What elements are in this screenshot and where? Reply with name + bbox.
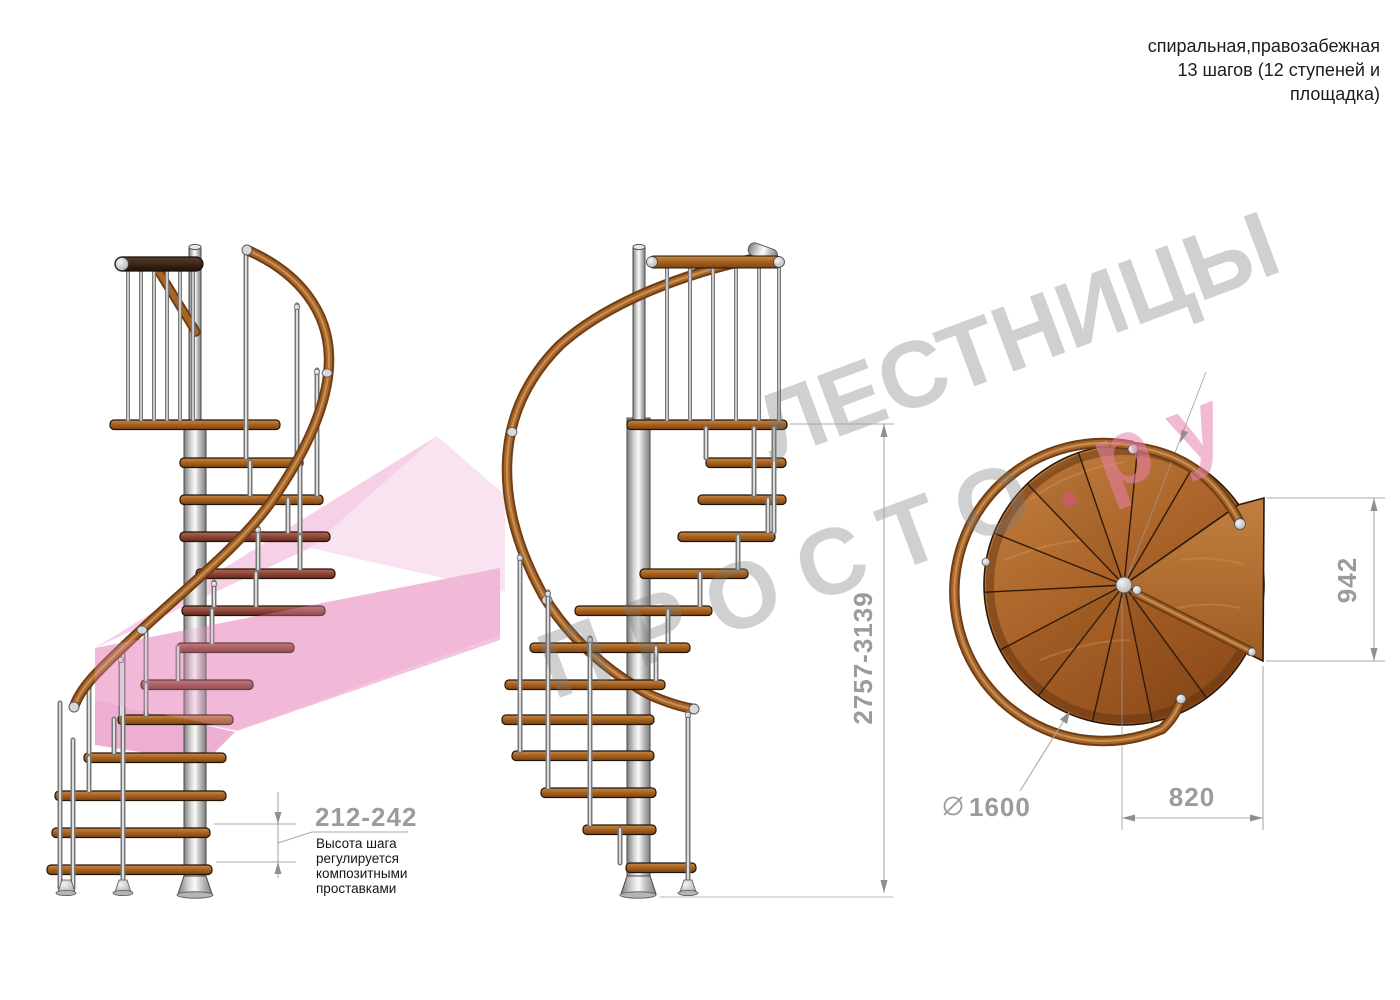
title-block: спиральная,правозабежная 13 шагов (12 ст… xyxy=(1148,36,1380,104)
dim-step-height-value: 212-242 xyxy=(315,802,417,832)
rail-end-cap xyxy=(116,258,129,271)
base-plate xyxy=(177,892,213,898)
step xyxy=(196,569,335,579)
guard-rail xyxy=(648,256,782,268)
title-line2: 13 шагов (12 ступеней и xyxy=(1178,60,1381,80)
rail-joint xyxy=(507,428,517,437)
dim-platform-depth-value: 942 xyxy=(1332,557,1362,603)
dim-note-line1: Высота шага xyxy=(316,836,397,851)
watermark-suffix: ру xyxy=(1077,359,1260,512)
rail-end-cap xyxy=(1176,694,1186,704)
rail-joint xyxy=(322,369,332,377)
step xyxy=(55,791,226,801)
platform-board xyxy=(110,420,280,430)
rail-end-cap xyxy=(689,704,699,714)
step xyxy=(52,828,210,838)
technical-drawing-page: ЛЕСТНИЦЫ ПРОСТО.ру 212-242 Высота шага р… xyxy=(0,0,1400,1000)
drawing-canvas: ЛЕСТНИЦЫ ПРОСТО.ру 212-242 Высота шага р… xyxy=(0,0,1400,1000)
rail-end-cap xyxy=(1248,648,1256,656)
left-feet xyxy=(56,880,133,896)
title-line3: площадка) xyxy=(1290,84,1380,104)
ribbon-front-band xyxy=(95,568,500,730)
rail-end-cap xyxy=(69,702,79,712)
step xyxy=(502,715,654,725)
left-elevation-view xyxy=(47,244,335,898)
side-feet xyxy=(678,880,698,896)
dim-offset-value: 820 xyxy=(1169,782,1215,812)
dim-note-line2: регулируется xyxy=(316,851,399,866)
dim-diameter-value: 1600 xyxy=(969,792,1031,822)
dim-note-line3: композитными xyxy=(316,866,407,881)
rail-end-ball xyxy=(1235,519,1246,530)
step xyxy=(541,788,656,798)
step xyxy=(84,753,226,763)
pole-base xyxy=(621,876,656,894)
dim-total-height-value: 2757-3139 xyxy=(848,591,878,724)
title-line1: спиральная,правозабежная xyxy=(1148,36,1380,56)
step xyxy=(512,751,654,761)
dimension-platform-depth xyxy=(1263,498,1385,830)
dim-note-line4: проставками xyxy=(316,881,396,896)
step xyxy=(180,532,330,542)
base-plate xyxy=(620,892,656,898)
center-pole-hub xyxy=(1116,577,1132,593)
step xyxy=(180,458,303,468)
rail-joint xyxy=(137,626,147,634)
rail-end-cap xyxy=(242,245,252,255)
